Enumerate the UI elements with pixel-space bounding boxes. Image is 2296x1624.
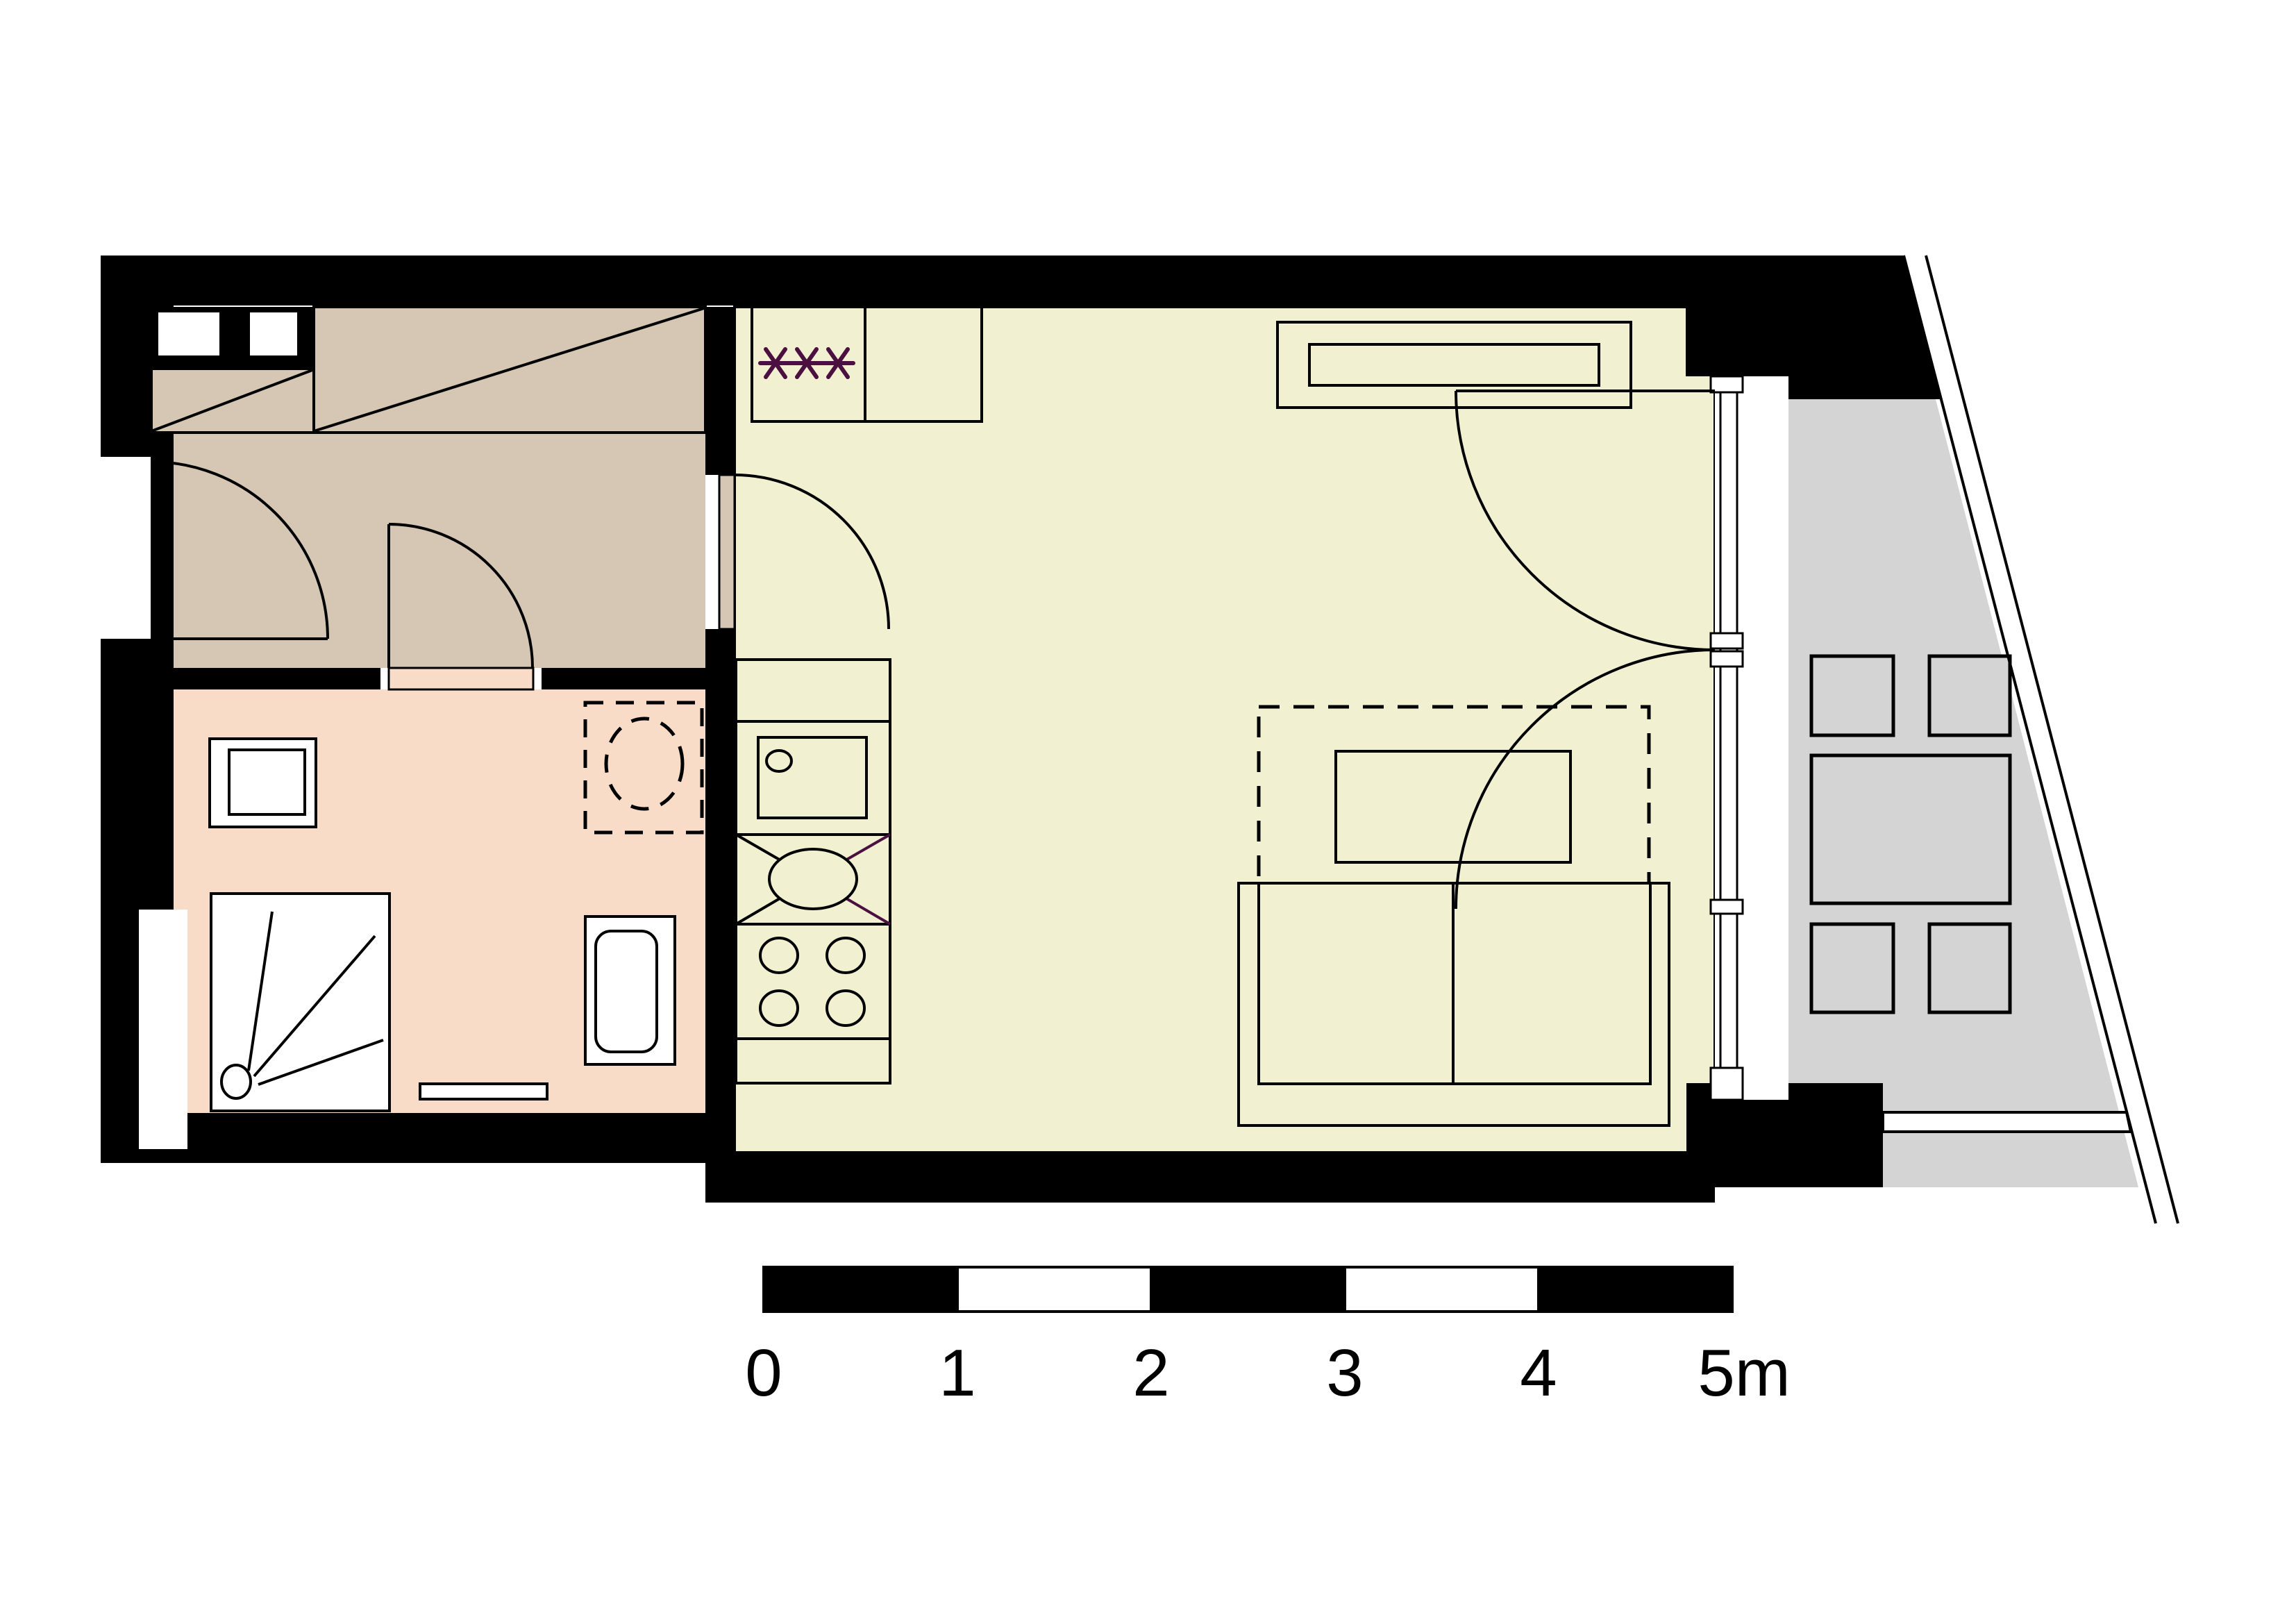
window-frame-block [1711,376,1743,392]
scale-label: 2 [1132,1336,1169,1410]
wall-window-pier [1686,256,1744,376]
balcony-table-icon [1811,755,2010,903]
scale-label: 3 [1326,1336,1363,1410]
bathroom-door-leaf [389,668,533,689]
wall-hall-living [705,307,735,1163]
balcony-chair-icon [1811,656,1893,735]
scale-segment [1151,1267,1345,1312]
scale-segment [957,1267,1151,1312]
scale-label: 1 [939,1336,975,1410]
coffee-table-icon [1336,751,1570,862]
scale-label: 0 [745,1336,782,1410]
balcony-divider [1883,1112,2131,1132]
sofa-icon [1239,883,1669,1125]
floor-plan-drawing: 0 1 2 3 4 5m [0,0,2296,1624]
wall-niche [139,910,187,1149]
bath-mat-icon [420,1084,547,1099]
scale-segment [764,1267,957,1312]
wall-shaft-window [158,312,219,355]
sink-basin [769,849,857,909]
washbasin-bowl [229,750,305,814]
shower-icon [211,894,389,1111]
scale-label: 5m [1698,1336,1790,1410]
balcony-chair-icon [1811,924,1893,1012]
wall-bottom-bathroom [101,1113,735,1163]
wall-shaft-window [250,312,297,355]
scale-segment [1345,1267,1539,1312]
hall-living-door-leaf [719,475,735,629]
balcony-chair-icon [1929,656,2010,735]
window-frame-block [1711,1068,1743,1100]
toilet-bowl [596,931,657,1052]
scale-bar [764,1267,1732,1312]
window-frame-block [1711,651,1743,667]
floor-plan-page: 0 1 2 3 4 5m [0,0,2296,1624]
scale-segment [1539,1267,1732,1312]
balcony-chair-icon [1929,924,2010,1012]
scale-label: 4 [1520,1336,1557,1410]
wall-bottom-living [705,1153,1715,1203]
window-band [1715,376,1788,1100]
window-frame-block [1711,900,1743,914]
entrance-door-opening [101,457,151,639]
window-frame-block [1711,633,1743,648]
